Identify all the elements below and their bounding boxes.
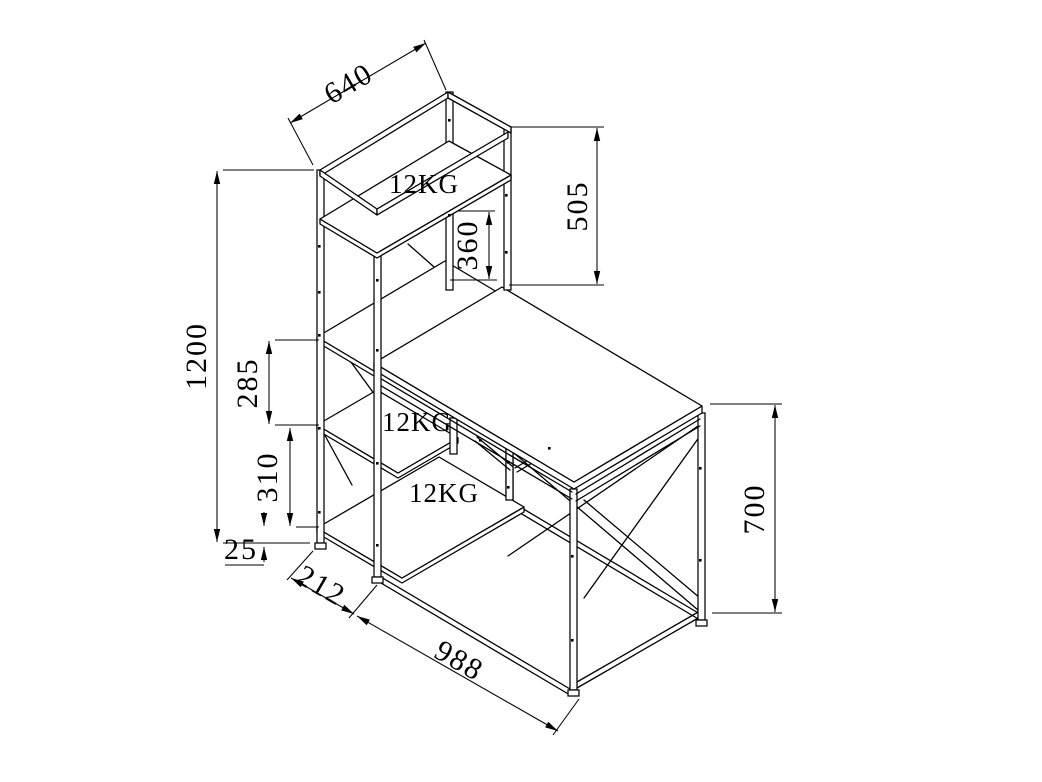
desk-rear-right-leg xyxy=(698,413,705,620)
technical-drawing-page: 640 505 360 1200 285 310 25 xyxy=(0,0,1042,782)
dimension-285: 285 xyxy=(231,340,319,425)
shelf-top-face xyxy=(317,457,524,578)
post-foot xyxy=(315,543,326,549)
isometric-desk-drawing: 640 505 360 1200 285 310 25 xyxy=(0,0,1042,782)
extension-line xyxy=(424,40,446,90)
dimension-505: 505 xyxy=(509,127,604,285)
dimension-700: 700 xyxy=(710,404,782,613)
stretcher-line xyxy=(505,504,700,620)
dim-212-label: 212 xyxy=(291,559,352,613)
bottom-shelf xyxy=(317,457,524,583)
tower-front-right-post xyxy=(374,209,381,577)
dim-640-label: 640 xyxy=(318,57,379,111)
stretcher-line xyxy=(577,611,700,682)
dimension-1200: 1200 xyxy=(180,170,314,543)
dim-285-label: 285 xyxy=(231,358,264,409)
load-label-top-shelf: 12KG xyxy=(389,169,459,199)
dim-700-label: 700 xyxy=(738,484,771,535)
extension-line xyxy=(553,699,579,735)
extension-line xyxy=(288,118,313,165)
brace-line xyxy=(584,500,700,598)
dim-505-label: 505 xyxy=(561,181,594,232)
dimension-310: 310 xyxy=(251,428,319,527)
desk-front-right-leg xyxy=(570,489,577,690)
tower-back-right-post xyxy=(504,127,511,290)
leg-foot xyxy=(696,620,707,626)
top-rail-back xyxy=(448,92,511,133)
dim-25-label: 25 xyxy=(224,533,258,566)
leg-foot xyxy=(568,690,579,696)
dimension-360: 360 xyxy=(450,211,497,280)
dim-360-label: 360 xyxy=(451,220,484,271)
post-foot xyxy=(372,577,383,583)
stretcher-line xyxy=(577,617,700,688)
dim-310-label: 310 xyxy=(251,452,284,503)
dim-1200-label: 1200 xyxy=(180,322,213,390)
desk-bottom-stretchers xyxy=(381,577,700,695)
load-label-bottom-shelf: 12KG xyxy=(409,478,479,508)
load-label-middle-shelf: 12KG xyxy=(382,407,452,437)
dimension-25: 25 xyxy=(224,512,264,566)
